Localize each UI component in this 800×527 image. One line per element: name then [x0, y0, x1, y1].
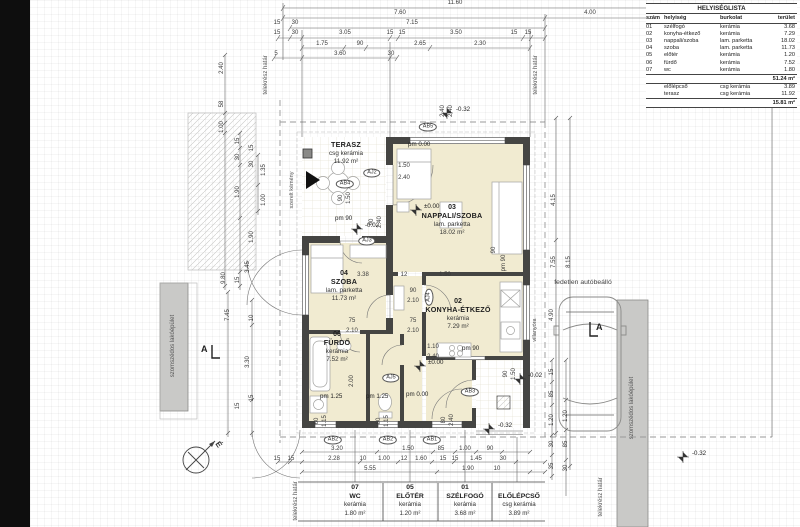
dim-label: 3.20	[331, 446, 343, 452]
dim-label: 4.15	[551, 194, 557, 206]
dim-label: 1.75	[316, 41, 328, 47]
dim-label: 2.65	[414, 41, 426, 47]
dim-label: 15	[387, 30, 394, 36]
room-material: lam. parketta	[326, 287, 362, 295]
dim-label: 15	[511, 30, 518, 36]
dim-label: 1.00	[219, 121, 225, 133]
dim-label: 3.50	[450, 30, 462, 36]
dim-label: 30	[235, 154, 241, 161]
room-label-nappali: 03 NAPPALI/SZOBA lam. parketta 18.02 m²	[422, 204, 483, 237]
dim-label: 7.45	[225, 309, 231, 321]
dim-label: 75	[410, 318, 417, 324]
parapet-label: pm 90	[462, 346, 479, 352]
room-material: kerámia	[435, 501, 495, 510]
room-list-table: HELYISÉGLISTA szám helyiség burkolat ter…	[646, 3, 797, 108]
dim-label: 90	[503, 371, 509, 378]
dim-label: 60	[376, 418, 382, 425]
dim-label: 80	[441, 417, 447, 424]
dim-label: 15	[274, 456, 281, 462]
dim-label: 15	[399, 30, 406, 36]
dim-label: 1.50	[398, 163, 410, 169]
parapet-label: pm 0.00	[406, 392, 428, 398]
dim-label: 3.05	[339, 30, 351, 36]
stub-szelfogo: 01 SZÉLFOGÓ kerámia 3.68 m²	[435, 484, 495, 518]
dim-label: 1.50	[346, 192, 352, 204]
dim-label: 5.55	[364, 466, 376, 472]
dim-label: 85	[563, 441, 569, 448]
dim-label: 9.80	[221, 272, 227, 284]
dim-label: 35	[549, 463, 555, 470]
dim-label: 1.20	[563, 410, 569, 422]
dim-label: 2.28	[328, 456, 340, 462]
dim-label: 2.40	[448, 105, 454, 117]
dim-label: 15	[249, 145, 255, 152]
floor-plan-sheet: 11.60 7.60 4.00 7.15 15 30 15 30 3.05 15…	[0, 0, 800, 527]
room-name: ELŐTÉR	[380, 492, 440, 501]
table-row: előlépcsőcsg kerámia3.89	[646, 84, 797, 91]
dim-label: 60	[314, 418, 320, 425]
dim-label: 15	[440, 456, 447, 462]
dim-label: 1.35	[261, 164, 267, 176]
table-row: 04szobalam. parketta11.73	[646, 45, 797, 52]
dim-label: 15	[235, 403, 241, 410]
dim-label: 85	[549, 391, 555, 398]
room-area: 1.80 m²	[325, 510, 385, 519]
room-area: 1.20 m²	[380, 510, 440, 519]
room-name: WC	[325, 492, 385, 501]
dim-label: 11.60	[448, 0, 463, 6]
dim-label: 1.45	[470, 456, 482, 462]
dim-label: 90	[410, 288, 417, 294]
dim-label: 2.40	[440, 105, 446, 117]
dim-label: 2.40	[219, 62, 225, 74]
dim-label: 15	[274, 20, 281, 26]
room-label-terasz: TERASZ csg kerámia 11.92 m²	[329, 141, 363, 166]
table-row: 03nappali/szobalam. parketta18.02	[646, 38, 797, 45]
table-row: 06fürdőkerámia7.52	[646, 60, 797, 67]
room-name: NAPPALI/SZOBA	[422, 212, 483, 221]
room-label-szoba: 04 SZOBA lam. parketta 11.73 m²	[326, 270, 362, 303]
stub-wc: 07 WC kerámia 1.80 m²	[325, 484, 385, 518]
table-row: 07wckerámia1.80	[646, 67, 797, 74]
dim-label: 7.15	[406, 20, 418, 26]
dim-label: 12	[401, 272, 408, 278]
dim-label: 15	[235, 277, 241, 284]
col-header: szám	[646, 14, 664, 23]
room-material: csg kerámia	[489, 501, 549, 510]
dim-label: 1.00	[378, 456, 390, 462]
dim-label: 1.50	[511, 368, 517, 380]
dim-label: 30	[292, 20, 299, 26]
room-area: 18.02 m²	[422, 229, 483, 237]
table-body: 01szélfogókerámia3.68 02konyha-étkezőker…	[646, 24, 797, 74]
room-area: 11.92 m²	[329, 158, 363, 166]
room-area: 7.52 m²	[324, 356, 351, 364]
dim-label: 1.50	[439, 272, 451, 278]
level-label: -0.32	[456, 107, 470, 113]
room-name: SZOBA	[326, 278, 362, 287]
dim-label: 1.20	[549, 414, 555, 426]
dim-label: 1.60	[415, 456, 427, 462]
dim-label: 2.40	[398, 175, 410, 181]
dim-label: 4.00	[584, 10, 596, 16]
dim-label: 15	[452, 456, 459, 462]
room-number: 01	[435, 484, 495, 492]
dim-label: 7.60	[394, 10, 406, 16]
chimney-label: szerelt kémény	[289, 172, 295, 209]
dim-label: 30	[500, 456, 507, 462]
level-label: ±0.00	[428, 360, 443, 366]
dim-label: 15	[525, 30, 532, 36]
dim-label: 10	[494, 466, 501, 472]
neighbor-building-label: szomszédos lakóépület	[629, 377, 635, 439]
dim-label: pm 90	[501, 255, 507, 272]
dim-label: 3.60	[334, 51, 346, 57]
dim-label: 30	[388, 51, 395, 57]
dim-label: 10	[360, 456, 367, 462]
room-material: kerámia	[425, 315, 490, 323]
dim-label: 7.55	[551, 256, 557, 268]
boundary-label: telekrész határ	[293, 481, 299, 520]
level-label: -0.02	[528, 373, 542, 379]
parapet-label: pm 1.25	[320, 394, 342, 400]
dim-label: 90	[338, 195, 344, 202]
dim-label: 30	[292, 30, 299, 36]
dim-label: 2.10	[407, 328, 419, 334]
north-arrow-icon	[183, 441, 215, 473]
carport-label: fedetlen autóbeálló	[554, 280, 611, 286]
room-material: lam. parketta	[422, 221, 483, 229]
table-subtotal: 51.24 m²	[646, 74, 797, 84]
room-name: SZÉLFOGÓ	[435, 492, 495, 501]
dim-label: 85	[438, 446, 445, 452]
boundary-label: telekrész határ	[263, 55, 269, 94]
room-material: csg kerámia	[329, 150, 363, 158]
dim-label: 2.00	[349, 375, 355, 387]
dim-label: 90	[487, 446, 494, 452]
room-area: 3.68 m²	[435, 510, 495, 519]
parapet-label: pm 1.25	[366, 394, 388, 400]
dim-label: 1.90	[462, 466, 474, 472]
table-total: 15.81 m²	[646, 98, 797, 108]
table-row: 01szélfogókerámia3.68	[646, 24, 797, 31]
dim-label: 1.00	[261, 194, 267, 206]
room-name: ELŐLÉPCSŐ	[489, 492, 549, 501]
electric-meter-label: villanyóra	[532, 318, 538, 341]
level-label: -0.32	[692, 451, 706, 457]
room-material: kerámia	[380, 501, 440, 510]
boundary-label: telekrész határ	[598, 477, 604, 516]
room-name: KONYHA-ÉTKEZŐ	[425, 306, 490, 315]
section-letter: A	[596, 322, 603, 332]
room-name: TERASZ	[329, 141, 363, 150]
table-title: HELYISÉGLISTA	[646, 3, 797, 14]
dim-label: 1.10	[427, 344, 439, 350]
dim-label: 30	[249, 161, 255, 168]
table-extra-body: előlépcsőcsg kerámia3.89 teraszcsg kerám…	[646, 84, 797, 98]
dim-label: 15	[274, 30, 281, 36]
dim-label: 3.45	[245, 261, 251, 273]
dim-label: 2.30	[474, 41, 486, 47]
dim-label: 1.50	[402, 446, 414, 452]
dim-label: 1.90	[249, 231, 255, 243]
dim-label: 1.90	[235, 186, 241, 198]
col-header: helyiség	[664, 14, 720, 23]
dim-label: 58	[219, 101, 225, 108]
dim-label: 3.30	[245, 356, 251, 368]
room-area: 11.73 m²	[326, 295, 362, 303]
room-number: 05	[380, 484, 440, 492]
dim-label: 5	[274, 51, 277, 57]
dim-label: 15	[235, 138, 241, 145]
table-row: 05előtérkerámia1.20	[646, 52, 797, 59]
room-area: 3.89 m²	[489, 510, 549, 519]
left-black-panel	[0, 0, 30, 527]
col-header: terület	[767, 14, 797, 23]
room-material: kerámia	[324, 348, 351, 356]
room-label-furdo: 06 FÜRDŐ kerámia 7.52 m²	[324, 331, 351, 364]
dim-label: 8.15	[566, 256, 572, 268]
dim-label: 30	[563, 465, 569, 472]
parapet-label: pm 90	[335, 216, 352, 222]
dim-label: 30	[549, 441, 555, 448]
dim-label: 90	[491, 247, 497, 254]
dim-label: 75	[349, 318, 356, 324]
room-material: kerámia	[325, 501, 385, 510]
dim-label: 10	[249, 315, 255, 322]
table-row: 02konyha-étkezőkerámia7.29	[646, 31, 797, 38]
neighbor-building-label: szomszédos lakóépület	[170, 315, 176, 377]
dim-label: 2.10	[407, 298, 419, 304]
dim-label: 1.15	[322, 415, 328, 427]
section-letter: A	[201, 344, 208, 354]
dim-label: 15	[249, 395, 255, 402]
parapet-label: pm 0.00	[408, 142, 430, 148]
dim-label: 12	[401, 456, 408, 462]
col-header: burkolat	[720, 14, 767, 23]
dim-label: 1.00	[459, 446, 471, 452]
level-label: -0.02	[365, 223, 379, 229]
dim-label: 90	[357, 41, 364, 47]
room-number: 07	[325, 484, 385, 492]
level-label: -0.32	[498, 423, 512, 429]
stub-elolepcso: ELŐLÉPCSŐ csg kerámia 3.89 m²	[489, 484, 549, 518]
table-row: teraszcsg kerámia11.92	[646, 91, 797, 98]
dim-label: 1.15	[384, 415, 390, 427]
table-header-row: szám helyiség burkolat terület	[646, 14, 797, 24]
boundary-label: telekrész határ	[533, 55, 539, 94]
dim-label: 15	[288, 456, 295, 462]
room-area: 7.29 m²	[425, 323, 490, 331]
dim-label: 15	[549, 369, 555, 376]
dim-label: 2.40	[449, 414, 455, 426]
room-name: FÜRDŐ	[324, 339, 351, 348]
stub-eloter: 05 ELŐTÉR kerámia 1.20 m²	[380, 484, 440, 518]
room-label-konyha: 02 KONYHA-ÉTKEZŐ kerámia 7.29 m²	[425, 298, 490, 331]
dim-label: 4.90	[549, 309, 555, 321]
